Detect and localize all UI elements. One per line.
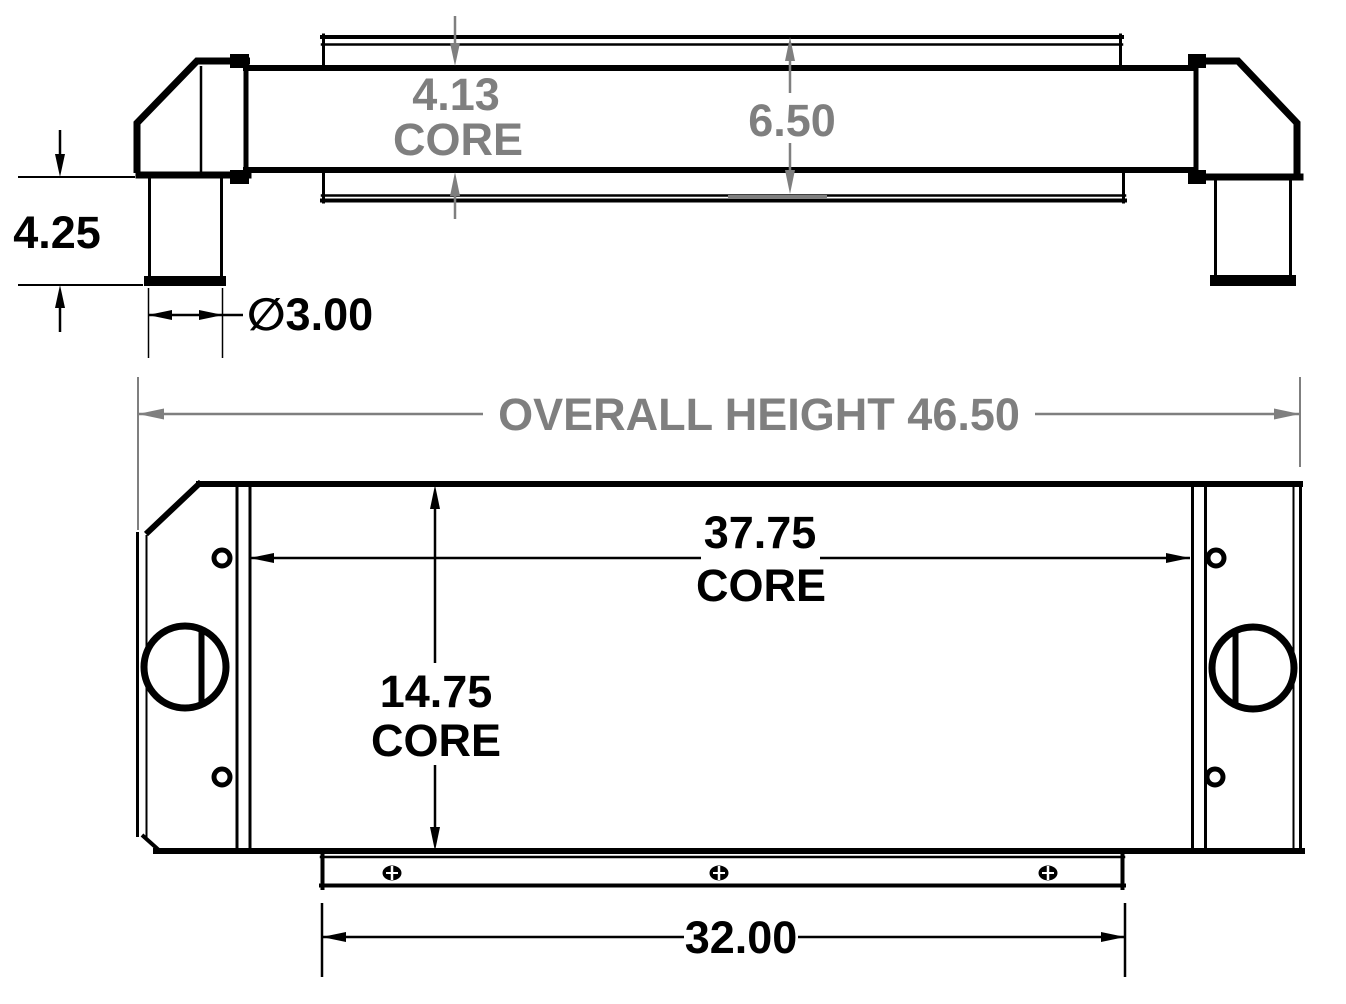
dim-core-width-right-arrow: [1166, 553, 1190, 563]
bracket-screw-left: [383, 866, 402, 881]
front-left-port-circle: [144, 626, 226, 708]
dim-core-depth-label: CORE: [393, 114, 523, 165]
side-right-pipe-end-band: [1210, 275, 1296, 286]
side-left-tank-outline: [137, 61, 250, 173]
dim-overall-height-left-arrow: [138, 409, 164, 420]
bracket-screw-center: [710, 866, 729, 881]
side-right-tank-bottom-tab: [1188, 170, 1206, 184]
front-right-port-circle: [1212, 627, 1294, 709]
dim-core-width-label: CORE: [696, 560, 826, 611]
dim-bracket-width-right-arrow: [1101, 932, 1125, 942]
dim-pipe-diameter-right-arrow: [199, 310, 223, 320]
side-right-tank-top-tab: [1188, 54, 1206, 68]
front-bolt-hole-top-left: [214, 550, 230, 566]
dim-pipe-drop-upper-arrow: [55, 154, 65, 177]
dim-overall-height-value: OVERALL HEIGHT 46.50: [498, 389, 1020, 440]
dim-core-width: 37.75 CORE: [250, 507, 1190, 611]
dim-pipe-diameter-value: ∅3.00: [247, 289, 373, 340]
dim-pipe-drop: 4.25: [13, 130, 143, 332]
technical-drawing-canvas: 4.13 CORE 6.50 4.25 ∅3.00: [0, 0, 1346, 1004]
dim-overall-height-right-arrow: [1274, 409, 1300, 420]
dim-core-depth-lower-arrow: [450, 172, 460, 196]
dim-core-depth-upper-arrow: [450, 43, 460, 66]
dim-core-depth: 4.13 CORE: [393, 16, 523, 219]
dim-core-width-value: 37.75: [704, 507, 817, 558]
dim-core-width-left-arrow: [250, 553, 274, 563]
dim-core-height: 14.75 CORE: [371, 485, 501, 851]
dim-core-height-label: CORE: [371, 715, 501, 766]
front-bolt-hole-top-right: [1208, 550, 1224, 566]
bracket-screw-right: [1039, 866, 1058, 881]
dim-pipe-diameter: ∅3.00: [148, 288, 373, 358]
dim-pipe-drop-value: 4.25: [13, 207, 101, 258]
dim-pipe-diameter-left-arrow: [148, 310, 172, 320]
dim-bracket-width-value: 32.00: [685, 912, 798, 963]
dim-pipe-drop-lower-arrow: [55, 285, 65, 308]
dim-core-depth-value: 4.13: [412, 69, 500, 120]
dim-bracket-width: 32.00: [322, 903, 1125, 977]
side-right-tank-outline: [1192, 61, 1297, 174]
dim-core-height-top-arrow: [430, 485, 440, 509]
side-view: [137, 35, 1300, 286]
side-left-pipe-end-band: [144, 276, 226, 286]
dim-bracket-width-left-arrow: [322, 932, 346, 942]
dim-overall-depth-lower-arrow: [785, 170, 795, 194]
dim-overall-depth-value: 6.50: [748, 95, 836, 146]
side-left-tank-bottom-tab: [230, 170, 249, 184]
dim-overall-depth-upper-arrow: [785, 37, 795, 61]
front-bolt-hole-bottom-left: [214, 769, 230, 785]
dim-core-height-bottom-arrow: [430, 827, 440, 851]
front-top-left-chamfer: [146, 482, 201, 534]
dim-core-height-value: 14.75: [380, 666, 493, 717]
front-bolt-hole-bottom-right: [1207, 769, 1223, 785]
side-left-tank-top-tab: [230, 54, 249, 68]
